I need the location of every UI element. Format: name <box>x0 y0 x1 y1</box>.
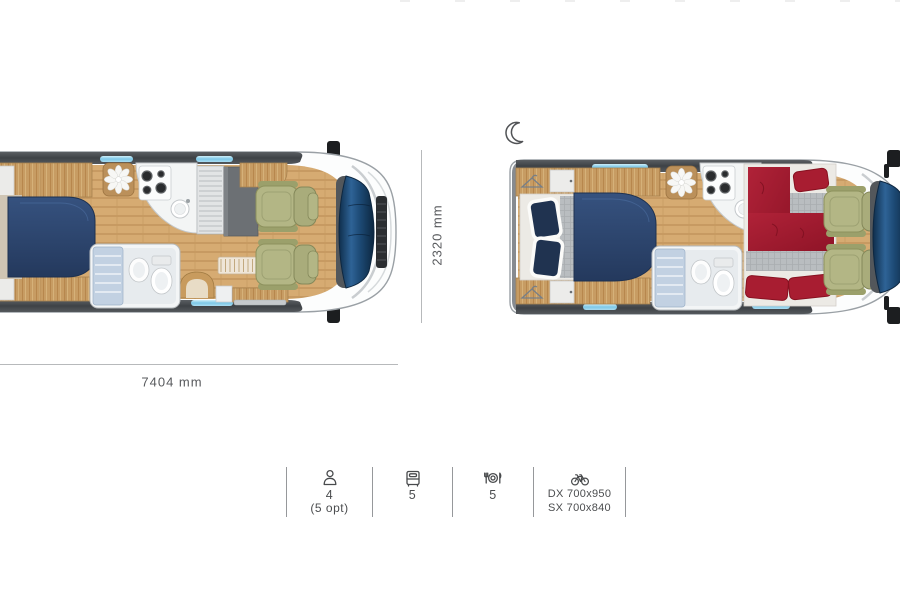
garage-dim-sx: SX 700x840 <box>548 502 611 516</box>
spec-occupants: 4 (5 opt) <box>287 467 373 517</box>
width-dimension-label: 2320 mm <box>430 204 445 265</box>
dining-value: 5 <box>489 488 496 502</box>
pillow <box>528 198 562 240</box>
garage-dim-dx: DX 700x950 <box>548 488 612 502</box>
crescent-moon-icon <box>502 118 530 148</box>
bathroom <box>652 246 742 310</box>
table-setting-icon <box>483 468 503 488</box>
converted-dinette-bed <box>744 164 836 306</box>
spec-dining: 5 <box>453 467 534 517</box>
front-grille <box>376 196 387 268</box>
bench-bottom <box>516 278 650 304</box>
day-layout-floorplan <box>0 141 396 323</box>
pilot-seat-left <box>256 181 318 232</box>
occupants-value: 4 <box>326 488 333 502</box>
spec-beds: 5 <box>373 467 453 517</box>
bench-top <box>516 168 660 196</box>
bathroom <box>90 244 180 308</box>
small-cabinet <box>216 286 232 302</box>
width-dimension-line <box>421 150 422 323</box>
windshield <box>339 176 374 288</box>
night-double-bed <box>520 193 656 281</box>
entry-step <box>234 300 286 305</box>
pilot-seat-right <box>256 239 318 290</box>
beds-value: 5 <box>409 488 416 502</box>
bicycle-icon <box>569 468 591 488</box>
person-icon <box>320 468 340 488</box>
rear-table <box>666 166 697 199</box>
duvet <box>574 193 656 281</box>
bed-icon <box>403 468 423 488</box>
radiator <box>218 257 259 274</box>
windshield <box>873 181 900 293</box>
length-dimension-label: 7404 mm <box>141 375 202 390</box>
occupants-note: (5 opt) <box>310 502 348 515</box>
pillow <box>531 237 563 278</box>
double-bed <box>8 197 95 277</box>
step-stool <box>180 272 214 298</box>
length-dimension-line <box>0 364 398 365</box>
night-layout-floorplan <box>510 150 900 324</box>
spec-garage: DX 700x950 SX 700x840 <box>534 467 626 517</box>
red-pillow <box>745 275 789 301</box>
rear-table <box>103 163 134 196</box>
roof-rail-top <box>0 152 302 164</box>
spec-bar: 4 (5 opt) 5 5 <box>286 467 626 517</box>
floorplan-page: 2320 mm 7404 mm 4 (5 opt) 5 <box>0 0 900 600</box>
red-pillow <box>793 168 829 193</box>
